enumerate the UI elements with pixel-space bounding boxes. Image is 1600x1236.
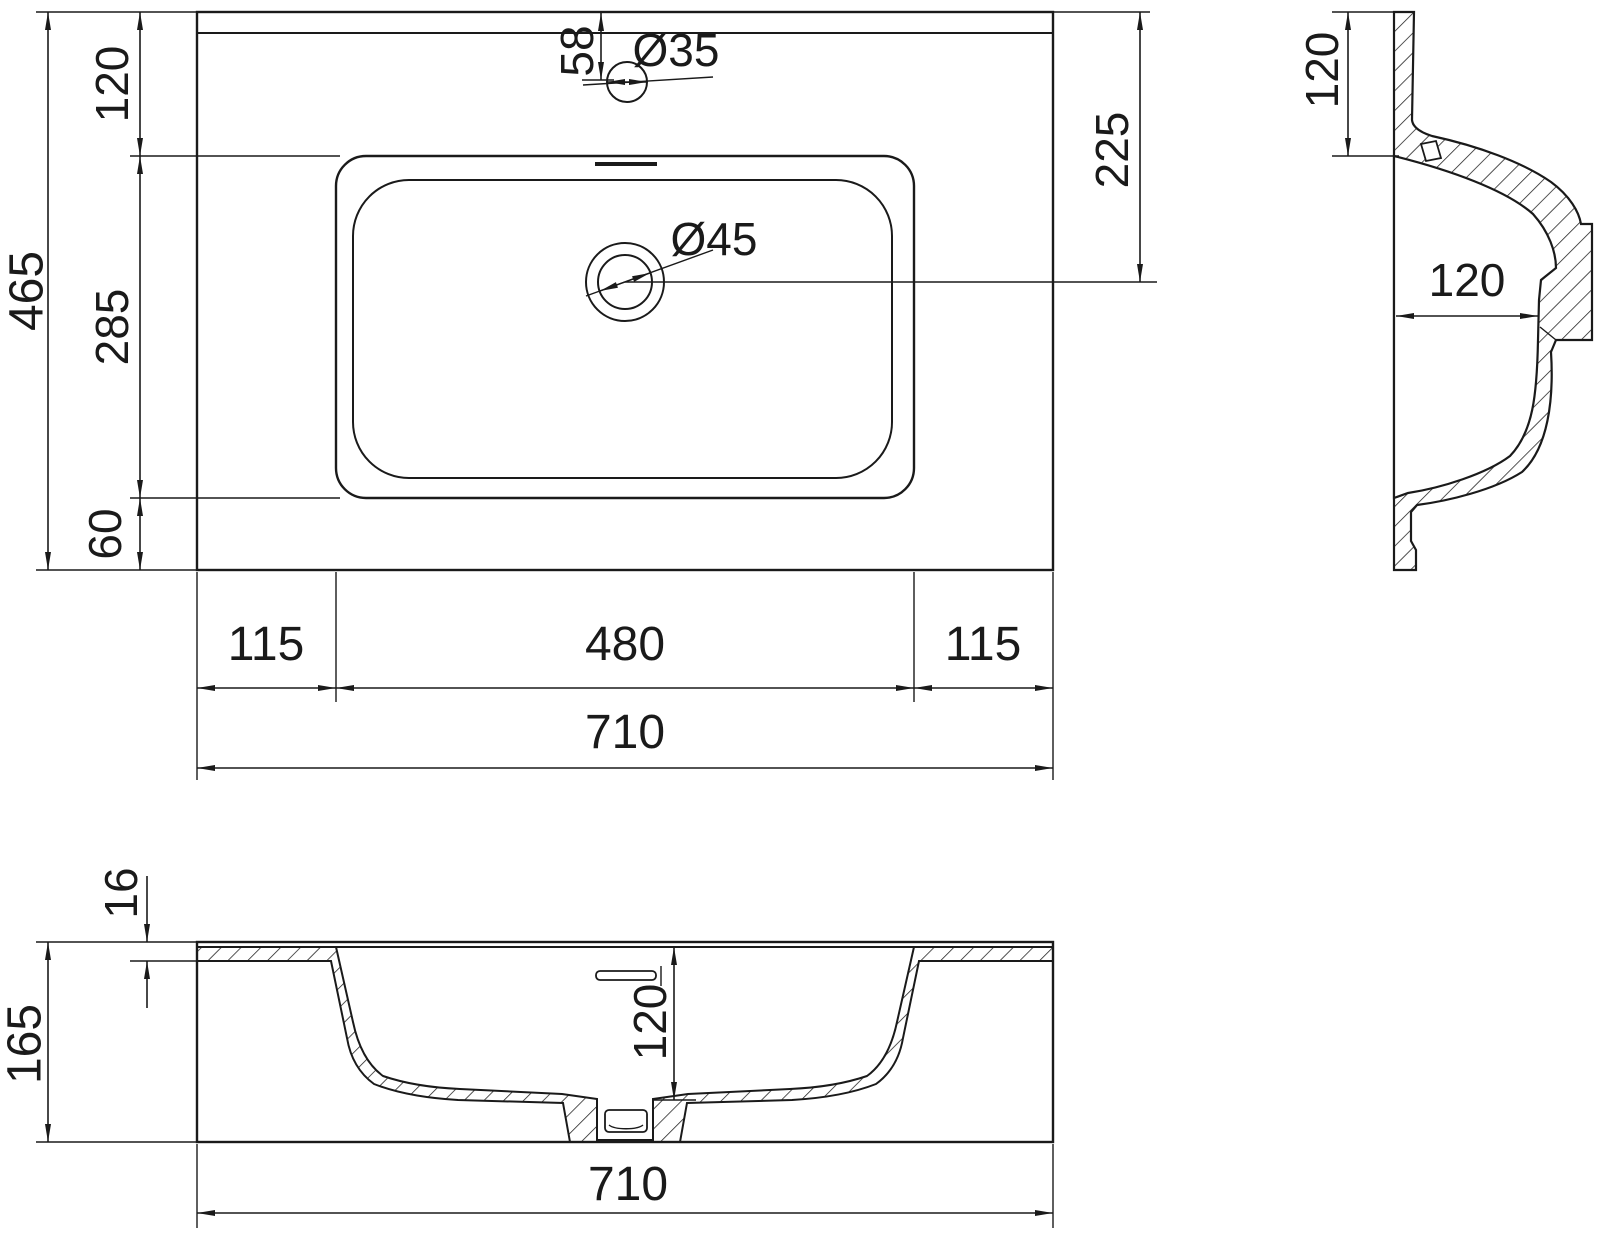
label-drain-diameter: Ø45 (671, 213, 758, 265)
dim-basin-width: 480 (585, 618, 665, 671)
plan-body-outline (197, 12, 1053, 570)
front-overflow-slot (596, 971, 656, 980)
dim-drain-offset: 225 (1086, 112, 1138, 189)
dim-overall-height: 165 (0, 1004, 52, 1084)
dim-front-margin: 60 (79, 508, 131, 559)
plan-view: Ø35 Ø45 465 120 285 60 58 225 (1, 12, 1158, 780)
front-section-view: 16 165 120 710 (0, 867, 1053, 1228)
dim-front-overall-width: 710 (588, 1158, 668, 1211)
drawing-canvas: Ø35 Ø45 465 120 285 60 58 225 (0, 0, 1600, 1236)
dim-left-margin: 115 (228, 618, 305, 671)
faucet-leader-line (583, 77, 713, 85)
dim-overall-width: 710 (585, 706, 665, 759)
dim-faucet-offset: 58 (551, 25, 603, 76)
dim-rim-thickness: 16 (95, 867, 147, 918)
side-section-view: 120 120 (1296, 12, 1592, 570)
dim-front-bowl-depth: 120 (624, 984, 676, 1061)
dim-basin-length: 285 (86, 289, 138, 366)
dim-side-back-deck: 120 (1296, 32, 1348, 109)
label-faucet-hole-diameter: Ø35 (633, 24, 720, 76)
dim-side-bowl-depth: 120 (1429, 254, 1506, 306)
dim-back-margin: 120 (86, 46, 138, 123)
basin-rim-outline (336, 156, 914, 498)
basin-inner-contour (353, 180, 892, 478)
washbasin-technical-drawing: Ø35 Ø45 465 120 285 60 58 225 (0, 0, 1600, 1236)
dim-right-margin: 115 (945, 618, 1022, 671)
dim-overall-depth: 465 (1, 251, 54, 331)
